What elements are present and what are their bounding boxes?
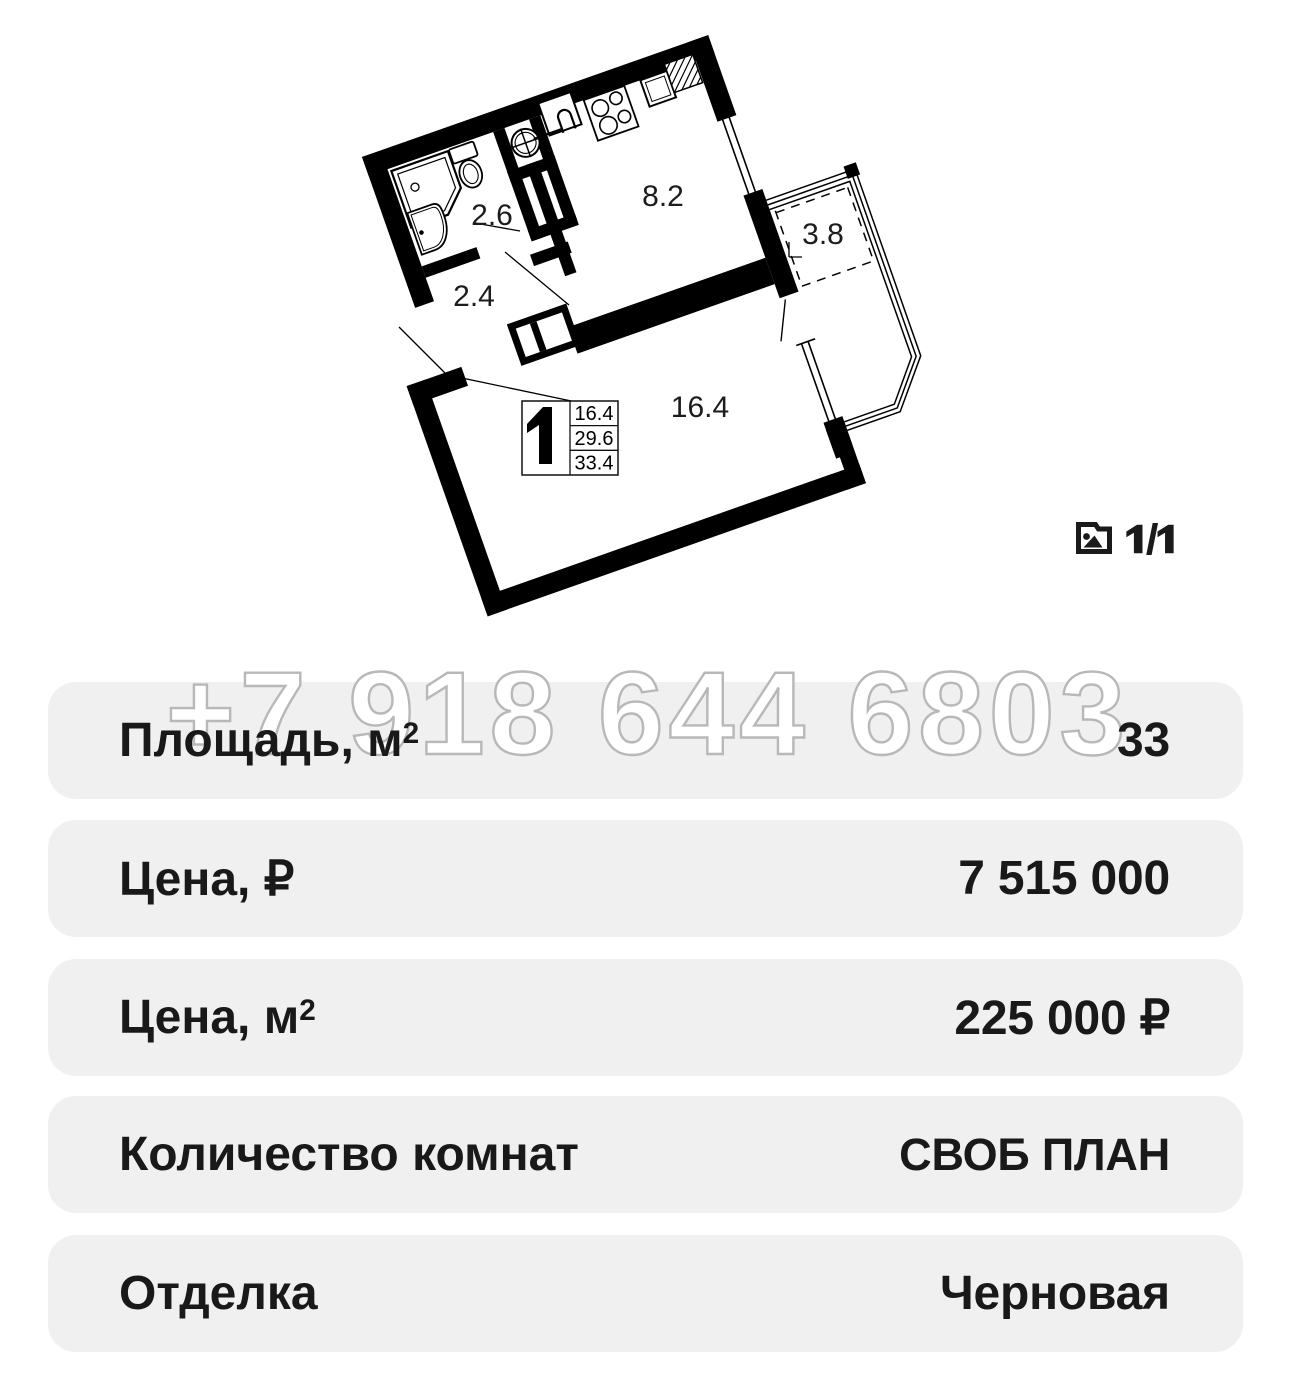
- svg-text:16.4: 16.4: [671, 391, 729, 424]
- svg-text:2.6: 2.6: [471, 199, 513, 232]
- svg-text:8.2: 8.2: [642, 180, 684, 213]
- svg-text:33.4: 33.4: [575, 453, 614, 475]
- svg-text:16.4: 16.4: [575, 403, 614, 425]
- svg-text:3.8: 3.8: [802, 218, 844, 251]
- svg-text:2.4: 2.4: [453, 280, 495, 313]
- svg-text:29.6: 29.6: [575, 428, 614, 450]
